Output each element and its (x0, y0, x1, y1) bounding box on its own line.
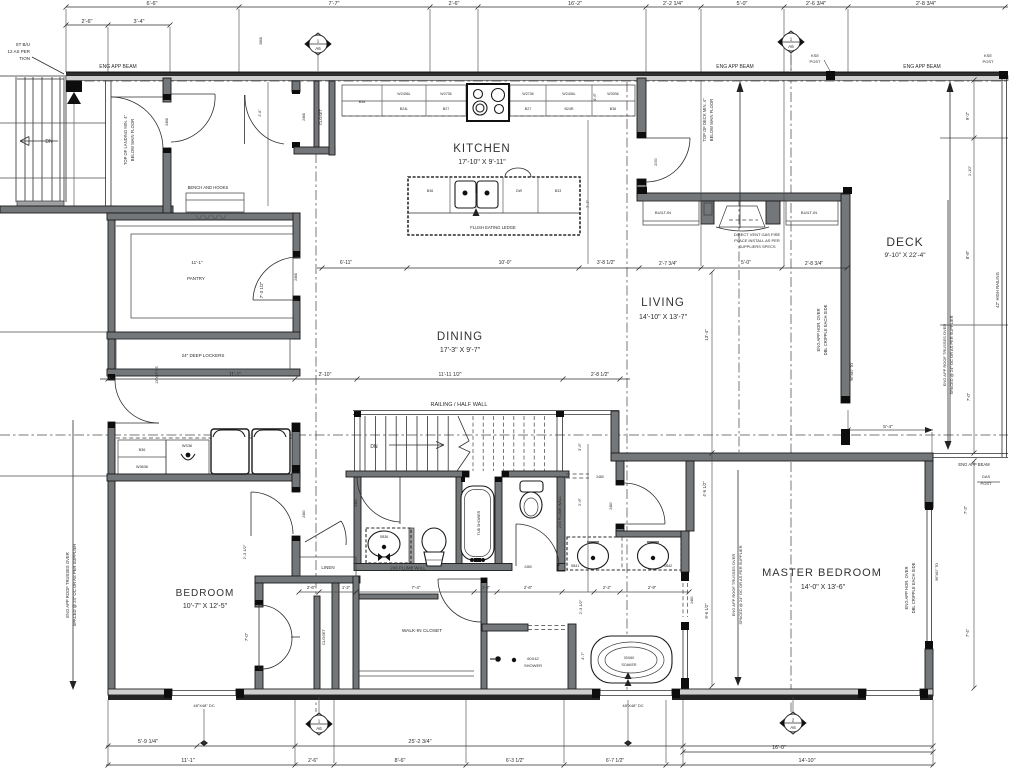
svg-text:5'-0": 5'-0" (741, 260, 751, 266)
svg-text:4'-6": 4'-6" (592, 92, 597, 101)
svg-text:2'-2 1/4": 2'-2 1/4" (663, 1, 683, 7)
svg-text:2'-6": 2'-6" (258, 109, 262, 117)
svg-text:2X6 PLUMB WALL: 2X6 PLUMB WALL (390, 566, 426, 571)
svg-text:W3636: W3636 (136, 465, 148, 469)
svg-text:POST: POST (983, 59, 994, 64)
svg-text:3'-8 1/2": 3'-8 1/2" (597, 260, 616, 266)
svg-text:SPACED @ 24" OC OR AS PER SUPP: SPACED @ 24" OC OR AS PER SUPPLIER (738, 545, 743, 624)
svg-text:ST B/U: ST B/U (16, 42, 30, 47)
svg-text:96"X60" TO: 96"X60" TO (935, 563, 939, 581)
svg-text:PANTRY: PANTRY (187, 276, 205, 281)
svg-text:2868: 2868 (259, 37, 263, 45)
svg-text:60X42: 60X42 (527, 656, 539, 661)
svg-text:2'-8 3/4": 2'-8 3/4" (805, 261, 824, 267)
svg-text:W2436L: W2436L (397, 92, 410, 96)
svg-text:CLOSET: CLOSET (318, 108, 323, 125)
svg-text:10'-7" X 12'-5": 10'-7" X 12'-5" (183, 603, 228, 610)
svg-text:LINEN: LINEN (321, 565, 334, 570)
svg-text:DINING: DINING (437, 331, 483, 343)
svg-text:DIRECT VENT GAS FIRE: DIRECT VENT GAS FIRE (734, 232, 781, 237)
svg-text:B36: B36 (359, 100, 365, 104)
svg-text:2480: 2480 (609, 502, 613, 510)
svg-text:BELOW MAIN FLOOR: BELOW MAIN FLOOR (130, 119, 135, 161)
svg-text:2'-6": 2'-6" (308, 758, 318, 764)
svg-text:2'-6": 2'-6" (82, 19, 93, 25)
svg-text:BEDROOM: BEDROOM (176, 588, 235, 599)
svg-text:6'-11": 6'-11" (340, 260, 353, 266)
svg-text:TOP OF DECK MIN. 4": TOP OF DECK MIN. 4" (702, 98, 707, 142)
svg-text:17'-10" X 9'-11": 17'-10" X 9'-11" (458, 159, 506, 166)
svg-text:2'-8 3/4": 2'-8 3/4" (916, 1, 936, 7)
svg-text:9'-6 1/2": 9'-6 1/2" (704, 603, 709, 619)
svg-text:2'-2": 2'-2" (603, 585, 612, 590)
svg-text:SHOWER: SHOWER (524, 663, 542, 668)
svg-text:12 AS PER: 12 AS PER (7, 49, 30, 54)
svg-text:ENG APP HOR. OVER: ENG APP HOR. OVER (816, 309, 821, 352)
svg-text:W2736: W2736 (440, 92, 451, 96)
svg-text:1'-10": 1'-10" (967, 165, 972, 176)
svg-text:A6: A6 (316, 726, 322, 731)
svg-text:2'-8 1/2": 2'-8 1/2" (591, 372, 610, 378)
svg-text:2468: 2468 (165, 118, 169, 126)
svg-text:BUILT-IN: BUILT-IN (801, 210, 817, 215)
svg-text:5'-4": 5'-4" (883, 424, 893, 430)
svg-text:2X6 PLUMB WALL: 2X6 PLUMB WALL (558, 496, 562, 528)
svg-text:2'-6": 2'-6" (577, 497, 582, 506)
svg-text:DN: DN (370, 444, 378, 450)
svg-text:DW: DW (516, 189, 523, 193)
svg-text:2468: 2468 (302, 113, 306, 121)
svg-text:7'-4": 7'-4" (412, 585, 421, 590)
svg-text:PLACE INSTALL AS PER: PLACE INSTALL AS PER (734, 238, 780, 243)
svg-text:ENG APP BEAM: ENG APP BEAM (716, 64, 753, 70)
svg-text:B27: B27 (443, 107, 449, 111)
svg-text:B33: B33 (555, 189, 561, 193)
svg-text:16'-2": 16'-2" (568, 1, 582, 7)
svg-text:ENG APP ROOF TRUSSES OVER: ENG APP ROOF TRUSSES OVER (65, 552, 70, 617)
svg-text:ENG APP ROOF TRUSSES OVER: ENG APP ROOF TRUSSES OVER (942, 324, 947, 387)
svg-text:30X60: 30X60 (624, 656, 634, 660)
svg-text:DN: DN (45, 139, 53, 145)
svg-text:11'-11 1/2": 11'-11 1/2" (438, 372, 461, 378)
svg-text:8'-8": 8'-8" (965, 250, 970, 259)
svg-text:SB36: SB36 (380, 535, 388, 539)
svg-text:11'-1": 11'-1" (181, 758, 195, 764)
svg-text:W2736: W2736 (522, 92, 533, 96)
svg-text:ENG APP HOR. OVER: ENG APP HOR. OVER (904, 567, 909, 610)
svg-text:SB41: SB41 (571, 564, 579, 568)
svg-text:DECK: DECK (886, 235, 923, 249)
svg-text:LIVING: LIVING (641, 297, 685, 309)
svg-text:48"X48" DC: 48"X48" DC (622, 703, 643, 708)
svg-text:A6: A6 (790, 725, 796, 730)
svg-text:SPACED @ 24" OC OR AS PER SUPP: SPACED @ 24" OC OR AS PER SUPPLIER (949, 315, 954, 394)
svg-text:7'-7": 7'-7" (585, 199, 590, 208)
svg-text:7'-2": 7'-2" (963, 505, 968, 514)
svg-text:BUILT-IN: BUILT-IN (655, 210, 671, 215)
svg-text:17'-3" X 9'-7": 17'-3" X 9'-7" (440, 347, 481, 354)
svg-text:2480: 2480 (302, 510, 306, 518)
svg-text:TOP OF LANDING MIN. 4": TOP OF LANDING MIN. 4" (123, 114, 128, 165)
svg-text:B27: B27 (525, 107, 531, 111)
svg-text:48"X48" DC: 48"X48" DC (193, 703, 214, 708)
svg-text:42" HIGH RAILING: 42" HIGH RAILING (995, 272, 1000, 308)
svg-text:WALK-IN CLOSET: WALK-IN CLOSET (402, 628, 442, 634)
svg-text:14'-10" X 13'-7": 14'-10" X 13'-7" (639, 314, 688, 321)
svg-text:2'-10": 2'-10" (319, 372, 332, 378)
svg-text:MASTER BEDROOM: MASTER BEDROOM (762, 567, 882, 579)
svg-text:B36: B36 (139, 448, 146, 452)
svg-text:KSE: KSE (984, 53, 992, 58)
svg-text:B36: B36 (610, 107, 616, 111)
svg-text:9'-2": 9'-2" (965, 111, 970, 120)
svg-text:RAILING / HALF WALL: RAILING / HALF WALL (431, 402, 488, 408)
svg-text:SOAKER: SOAKER (622, 663, 637, 667)
svg-text:7'-0": 7'-0" (966, 392, 971, 401)
svg-text:SPACED @ 24" OC OR AS PER SUPP: SPACED @ 24" OC OR AS PER SUPPLIER (72, 544, 77, 627)
svg-text:ENG APP ROOF TRUSSES OVER: ENG APP ROOF TRUSSES OVER (731, 554, 736, 617)
svg-text:A6: A6 (315, 46, 321, 51)
svg-text:SB42: SB42 (664, 564, 672, 568)
svg-text:W3036: W3036 (607, 92, 618, 96)
svg-text:2'-9": 2'-9" (648, 585, 657, 590)
svg-text:1'-2": 1'-2" (482, 585, 491, 590)
svg-text:7'-7": 7'-7" (329, 1, 340, 7)
svg-text:2050: 2050 (654, 158, 658, 166)
svg-text:CLOSET: CLOSET (321, 628, 326, 645)
svg-text:7'-4": 7'-4" (965, 628, 970, 637)
svg-text:BELOW MAIN FLOOR: BELOW MAIN FLOOR (709, 99, 714, 141)
svg-text:7'-0": 7'-0" (244, 632, 249, 641)
svg-text:5'-0": 5'-0" (737, 1, 748, 7)
svg-text:13'-4": 13'-4" (704, 329, 709, 341)
svg-text:2'-3 1/2": 2'-3 1/2" (578, 599, 583, 614)
svg-text:7'-3 1/2": 7'-3 1/2" (259, 281, 264, 298)
svg-text:2480: 2480 (524, 565, 532, 569)
svg-text:4'-7": 4'-7" (580, 651, 585, 660)
svg-text:B24R: B24R (565, 107, 574, 111)
svg-text:25'-2 3/4": 25'-2 3/4" (408, 739, 431, 745)
svg-text:2'-6": 2'-6" (449, 1, 460, 7)
svg-text:KITCHEN: KITCHEN (453, 143, 510, 155)
svg-text:2480: 2480 (690, 596, 694, 604)
svg-text:1'-2": 1'-2" (342, 585, 351, 590)
svg-text:6'-7 1/2": 6'-7 1/2" (606, 758, 625, 764)
svg-text:B24L: B24L (400, 107, 408, 111)
svg-text:2480: 2480 (596, 475, 604, 479)
svg-text:11'-1": 11'-1" (229, 372, 242, 378)
svg-text:TION: TION (19, 56, 30, 61)
svg-text:8'-6": 8'-6" (395, 758, 406, 764)
svg-text:3'-6": 3'-6" (577, 442, 582, 451)
svg-text:10'-0": 10'-0" (499, 260, 512, 266)
svg-text:TUB SHOWER: TUB SHOWER (477, 510, 481, 535)
svg-text:2'-6": 2'-6" (524, 585, 533, 590)
svg-text:POST: POST (810, 59, 821, 64)
svg-text:2'-6 3/4": 2'-6 3/4" (806, 1, 826, 7)
svg-text:13"X67" FS: 13"X67" FS (155, 366, 159, 384)
svg-text:FLUSH EATING LEDGE: FLUSH EATING LEDGE (470, 225, 516, 230)
svg-text:16'-0": 16'-0" (772, 745, 786, 751)
svg-text:11'-1": 11'-1" (191, 260, 203, 265)
svg-text:2'-6": 2'-6" (307, 585, 316, 590)
svg-text:3'-4": 3'-4" (134, 19, 145, 25)
svg-text:14'-10": 14'-10" (798, 758, 815, 764)
svg-text:4'-6 1/2": 4'-6 1/2" (702, 481, 707, 497)
svg-text:2'-7 3/4": 2'-7 3/4" (659, 261, 678, 267)
svg-text:B36: B36 (427, 189, 433, 193)
svg-text:GAS: GAS (982, 474, 991, 479)
svg-text:KSE: KSE (811, 53, 819, 58)
svg-text:14'-0" X 13'-6": 14'-0" X 13'-6" (801, 584, 846, 591)
svg-text:ENG APP BEAM: ENG APP BEAM (99, 64, 136, 70)
svg-text:ENG APP BEAM: ENG APP BEAM (903, 64, 940, 70)
svg-text:9'-10" X 22'-4": 9'-10" X 22'-4" (884, 252, 926, 259)
svg-text:6'-3 1/2": 6'-3 1/2" (506, 758, 525, 764)
svg-text:6'-6": 6'-6" (147, 1, 158, 7)
svg-text:24" DEEP LOCKERS: 24" DEEP LOCKERS (182, 353, 225, 358)
svg-text:2468: 2468 (294, 273, 298, 281)
svg-text:2480: 2480 (354, 499, 358, 507)
svg-text:SUPPLIERS SPECS: SUPPLIERS SPECS (738, 244, 775, 249)
svg-text:2'-3 1/2": 2'-3 1/2" (242, 544, 247, 559)
svg-text:96"X80" TO: 96"X80" TO (850, 363, 854, 381)
svg-text:ENG APP BEAM: ENG APP BEAM (958, 462, 990, 467)
svg-text:5'-9 1/4": 5'-9 1/4" (138, 739, 158, 745)
svg-text:W2436L: W2436L (562, 92, 575, 96)
svg-text:BENCH AND HOOKS: BENCH AND HOOKS (188, 185, 229, 190)
svg-text:WS36: WS36 (182, 444, 192, 448)
svg-text:DBL CRIPPLE EACH SIDE: DBL CRIPPLE EACH SIDE (823, 304, 828, 355)
svg-text:DBL CRIPPLE EACH SIDE: DBL CRIPPLE EACH SIDE (911, 562, 916, 613)
svg-text:A6: A6 (788, 44, 794, 49)
